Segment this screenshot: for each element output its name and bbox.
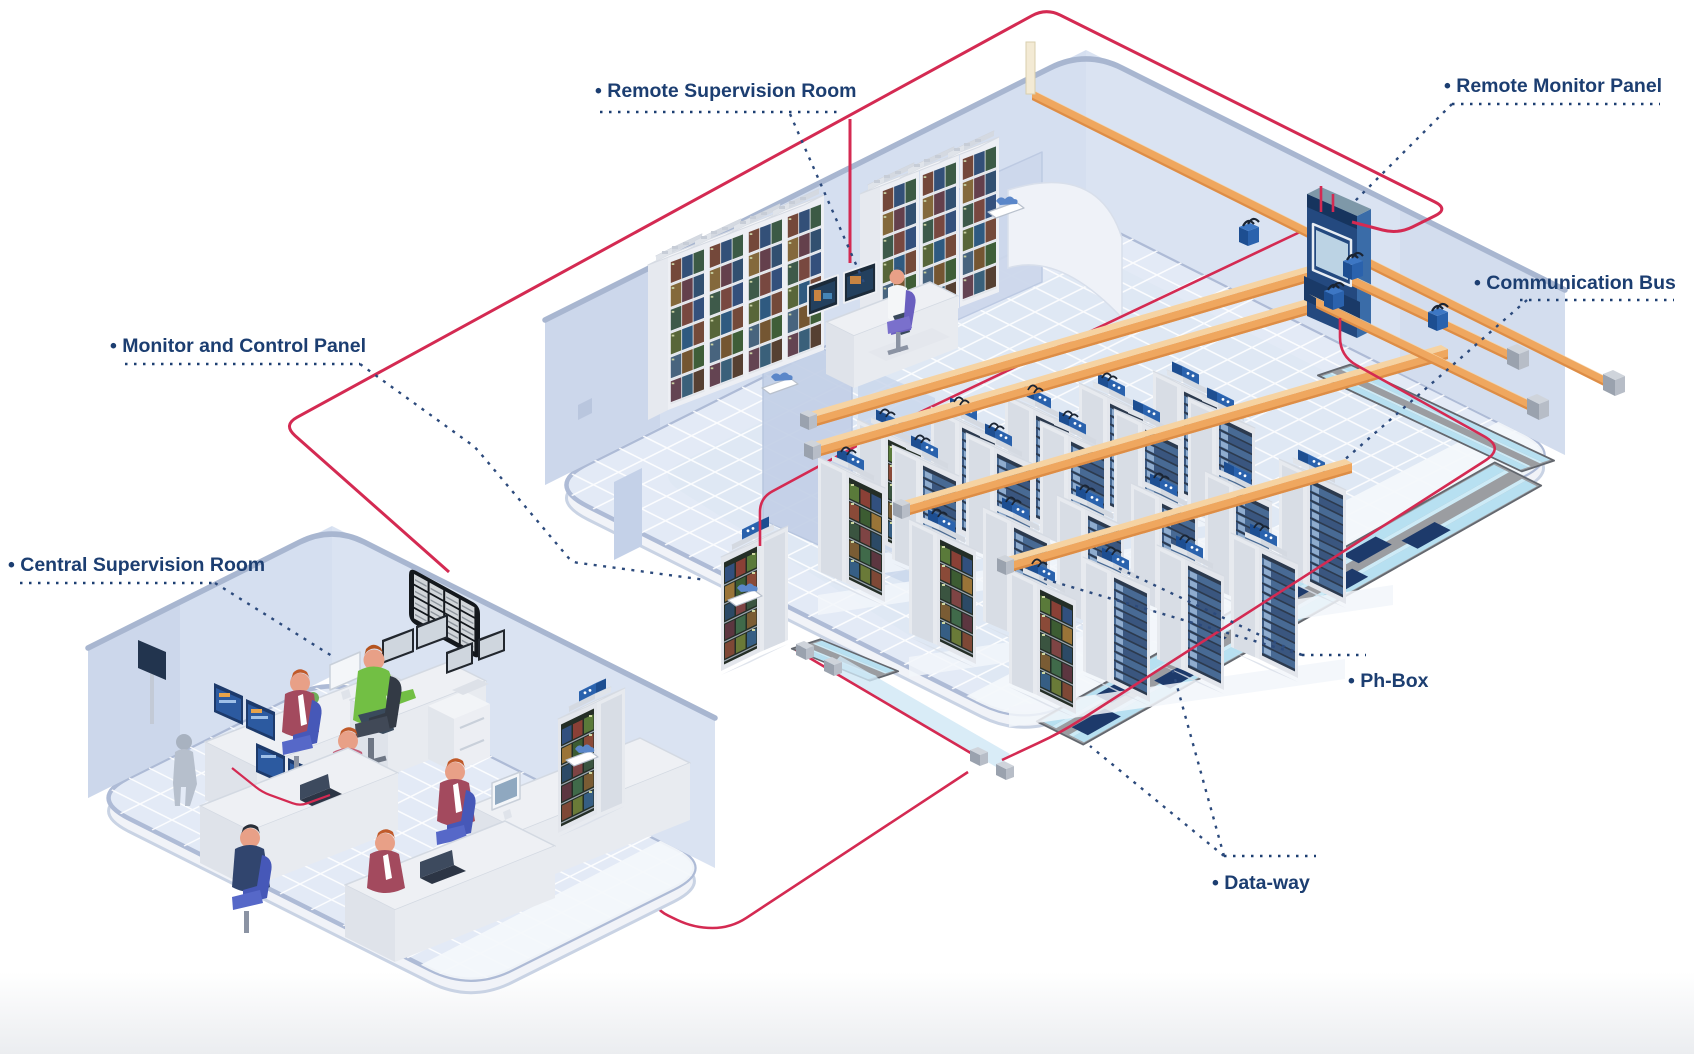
svg-text:• Remote Supervision Room: • Remote Supervision Room: [595, 80, 856, 102]
svg-text:• Data-way: • Data-way: [1212, 872, 1310, 894]
svg-text:• Remote Monitor Panel: • Remote Monitor Panel: [1444, 75, 1662, 97]
svg-text:• Communication Bus: • Communication Bus: [1474, 272, 1676, 294]
svg-text:• Monitor and Control Panel: • Monitor and Control Panel: [110, 335, 366, 357]
svg-text:• Central Supervision Room: • Central Supervision Room: [8, 554, 265, 576]
svg-text:• Ph-Box: • Ph-Box: [1348, 670, 1429, 692]
